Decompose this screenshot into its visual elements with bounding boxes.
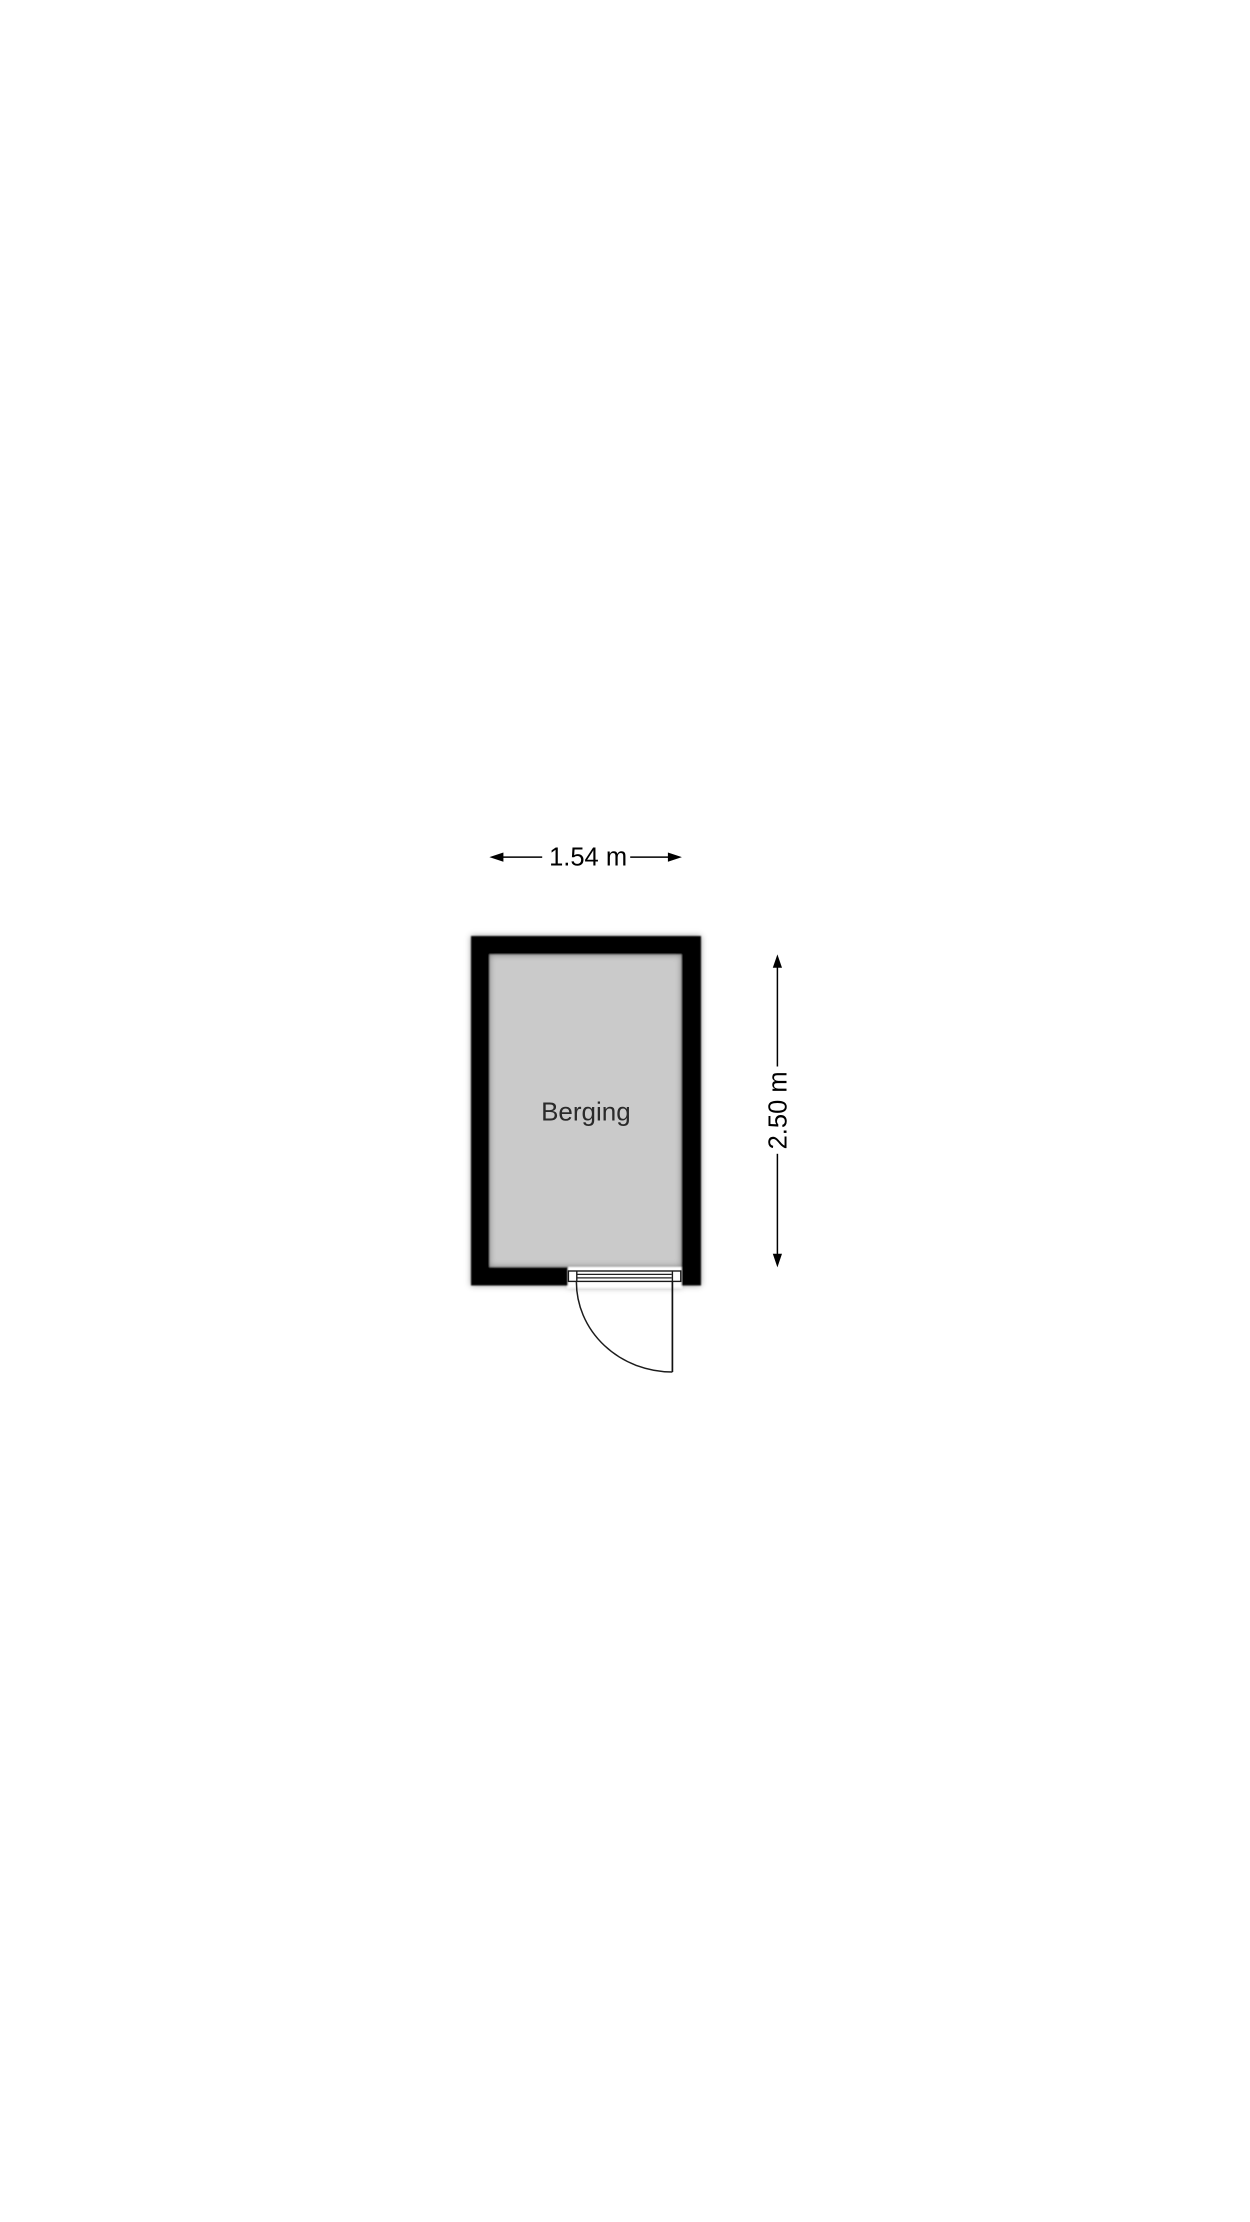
svg-text:Berging: Berging: [541, 1097, 631, 1127]
svg-text:1.54 m: 1.54 m: [549, 843, 627, 871]
svg-text:2.50 m: 2.50 m: [764, 1071, 792, 1149]
